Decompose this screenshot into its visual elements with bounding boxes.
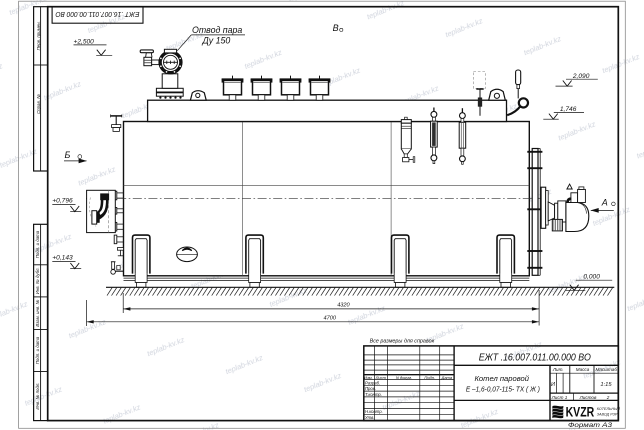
svg-text:Лист: Лист	[375, 375, 387, 380]
svg-text:Инв. № дубл.: Инв. № дубл.	[35, 267, 40, 294]
svg-text:В: В	[333, 23, 339, 33]
svg-text:Лит.: Лит.	[552, 367, 564, 372]
svg-text:Справ. №: Справ. №	[36, 94, 41, 114]
svg-text:Листов: Листов	[579, 395, 597, 400]
svg-text:Перв. примен.: Перв. примен.	[36, 21, 41, 50]
svg-text:Котел паровой: Котел паровой	[474, 374, 529, 383]
svg-text:Масса: Масса	[576, 367, 590, 372]
svg-text:0,000: 0,000	[583, 273, 600, 280]
svg-text:Все размеры для справок: Все размеры для справок	[370, 339, 435, 345]
svg-text:2: 2	[606, 395, 610, 400]
svg-text:КОТЕЛЬНЫЙ: КОТЕЛЬНЫЙ	[597, 407, 621, 411]
svg-text:KVZR: KVZR	[566, 404, 595, 419]
svg-text:+2,500: +2,500	[74, 39, 95, 46]
svg-text:Пров.: Пров.	[365, 386, 376, 391]
svg-text:Отвод пара: Отвод пара	[192, 25, 242, 35]
svg-text:Подп.: Подп.	[424, 375, 435, 380]
svg-text:Лист 1: Лист 1	[551, 395, 568, 400]
svg-text:Подп. и дата: Подп. и дата	[35, 336, 40, 364]
svg-text:4320: 4320	[337, 303, 350, 309]
svg-text:Б: Б	[65, 150, 71, 160]
svg-text:Инв. № подл.: Инв. № подл.	[35, 382, 40, 409]
svg-text:Взам. инв. №: Взам. инв. №	[35, 299, 40, 326]
svg-text:Масштаб: Масштаб	[595, 367, 617, 372]
svg-text:Т.контр.: Т.контр.	[365, 392, 382, 397]
svg-text:Изм.: Изм.	[364, 375, 373, 380]
svg-text:+0,143: +0,143	[52, 255, 73, 262]
svg-text:И: И	[551, 382, 555, 388]
svg-text:ЕЖТ .16.007.011.00.000 ВО: ЕЖТ .16.007.011.00.000 ВО	[479, 353, 591, 364]
svg-text:Н.контр.: Н.контр.	[365, 409, 383, 414]
svg-text:ЗАВОД РЗР: ЗАВОД РЗР	[597, 413, 618, 417]
svg-text:N докум.: N докум.	[396, 375, 412, 380]
svg-text:1:15: 1:15	[600, 382, 612, 388]
svg-text:+0,796: +0,796	[52, 198, 73, 205]
svg-text:ЕЖТ .16.007.011.00.000 ВО: ЕЖТ .16.007.011.00.000 ВО	[55, 10, 139, 19]
svg-text:Формат А3: Формат А3	[568, 422, 613, 429]
svg-text:Подп. и дата: Подп. и дата	[35, 230, 40, 258]
svg-text:Утв.: Утв.	[365, 415, 375, 420]
svg-text:4700: 4700	[324, 315, 337, 321]
svg-text:Разраб.: Разраб.	[365, 380, 380, 385]
svg-text:Ду 150: Ду 150	[202, 36, 231, 46]
svg-text:Дата: Дата	[441, 375, 453, 380]
svg-text:Е –1,6-0,07-115- ТХ ( Ж ): Е –1,6-0,07-115- ТХ ( Ж )	[466, 386, 540, 393]
svg-text:А: А	[601, 197, 608, 207]
